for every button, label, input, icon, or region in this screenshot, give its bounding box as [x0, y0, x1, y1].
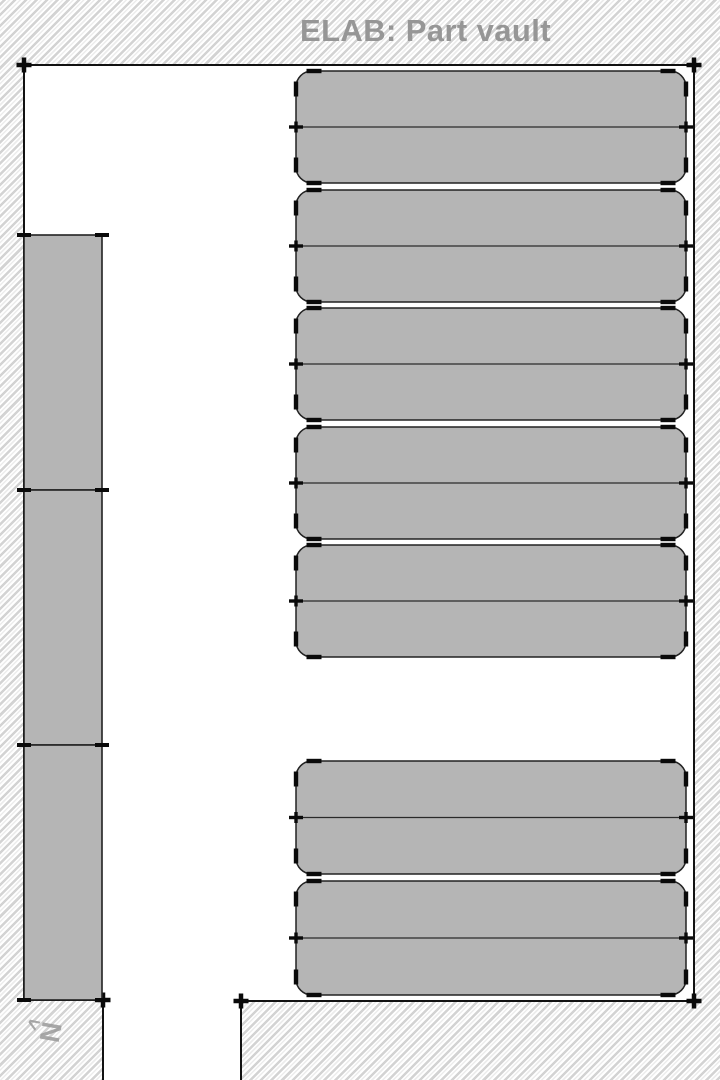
shelf-corner-tick	[661, 879, 676, 883]
divider-end-tick	[294, 933, 297, 944]
shelf-corner-tick	[684, 319, 688, 334]
shelf-corner-tick	[661, 188, 676, 192]
shelf-corner-tick	[684, 438, 688, 453]
box-corner-tick	[17, 998, 31, 1002]
shelf-corner-tick	[661, 993, 676, 997]
shelf-corner-tick	[684, 395, 688, 410]
shelf-unit	[289, 425, 693, 541]
shelf-corner-tick	[684, 772, 688, 787]
shelf-corner-tick	[294, 319, 298, 334]
shelf-corner-tick	[684, 82, 688, 97]
divider-end-tick	[294, 359, 297, 370]
shelf-unit	[289, 543, 693, 659]
shelf-corner-tick	[661, 759, 676, 763]
shelf-unit	[289, 188, 693, 304]
shelf-corner-tick	[661, 306, 676, 310]
page-title: ELAB: Part vault	[300, 13, 551, 49]
storage-box-outline	[24, 235, 102, 490]
shelf-corner-tick	[307, 69, 322, 73]
floorplan-canvas	[0, 0, 720, 1080]
storage-box	[17, 488, 109, 747]
shelf-corner-tick	[307, 181, 322, 185]
shelf-corner-tick	[307, 872, 322, 876]
shelf-corner-tick	[684, 158, 688, 173]
divider-end-tick	[294, 596, 297, 607]
shelf-corner-tick	[307, 759, 322, 763]
storage-box-outline	[24, 745, 102, 1000]
shelf-corner-tick	[661, 300, 676, 304]
divider-end-tick	[294, 241, 297, 252]
shelf-corner-tick	[294, 395, 298, 410]
shelf-corner-tick	[294, 849, 298, 864]
shelf-corner-tick	[294, 632, 298, 647]
shelf-corner-tick	[294, 158, 298, 173]
box-corner-tick	[95, 488, 109, 492]
shelf-corner-tick	[294, 970, 298, 985]
floorplan-page: ELAB: Part vault < N	[0, 0, 720, 1080]
shelf-corner-tick	[661, 425, 676, 429]
shelf-corner-tick	[661, 543, 676, 547]
shelf-corner-tick	[307, 306, 322, 310]
shelf-corner-tick	[307, 655, 322, 659]
shelf-corner-tick	[684, 201, 688, 216]
shelf-corner-tick	[684, 514, 688, 529]
shelf-corner-tick	[684, 277, 688, 292]
shelf-corner-tick	[684, 849, 688, 864]
shelf-corner-tick	[307, 425, 322, 429]
box-corner-tick	[95, 998, 109, 1002]
shelf-corner-tick	[684, 556, 688, 571]
shelf-corner-tick	[307, 537, 322, 541]
wall-corner-tick	[692, 994, 697, 1009]
shelf-unit	[289, 759, 693, 876]
divider-end-tick	[684, 359, 687, 370]
divider-end-tick	[294, 812, 297, 823]
shelf-corner-tick	[684, 892, 688, 907]
shelf-corner-tick	[661, 537, 676, 541]
box-corner-tick	[95, 233, 109, 237]
box-corner-tick	[17, 743, 31, 747]
shelf-corner-tick	[684, 632, 688, 647]
box-corner-tick	[95, 743, 109, 747]
divider-end-tick	[684, 241, 687, 252]
wall-corner-tick	[239, 994, 244, 1009]
divider-end-tick	[684, 812, 687, 823]
shelf-corner-tick	[661, 418, 676, 422]
shelf-corner-tick	[294, 277, 298, 292]
shelf-corner-tick	[661, 181, 676, 185]
box-corner-tick	[17, 233, 31, 237]
shelf-corner-tick	[294, 82, 298, 97]
shelf-corner-tick	[294, 438, 298, 453]
shelf-corner-tick	[684, 970, 688, 985]
shelf-corner-tick	[294, 556, 298, 571]
shelf-corner-tick	[294, 514, 298, 529]
storage-box	[17, 233, 109, 492]
shelf-corner-tick	[307, 300, 322, 304]
shelf-corner-tick	[294, 772, 298, 787]
storage-box	[17, 743, 109, 1002]
wall-corner-tick	[692, 58, 697, 73]
storage-box-outline	[24, 490, 102, 745]
shelf-corner-tick	[294, 892, 298, 907]
divider-end-tick	[294, 122, 297, 133]
shelf-corner-tick	[294, 201, 298, 216]
shelf-corner-tick	[661, 69, 676, 73]
wall-corner-tick	[22, 58, 27, 73]
shelf-corner-tick	[307, 543, 322, 547]
shelf-corner-tick	[307, 188, 322, 192]
divider-end-tick	[294, 478, 297, 489]
divider-end-tick	[684, 596, 687, 607]
shelf-corner-tick	[661, 872, 676, 876]
divider-end-tick	[684, 933, 687, 944]
box-corner-tick	[17, 488, 31, 492]
shelf-corner-tick	[661, 655, 676, 659]
shelf-unit	[289, 879, 693, 997]
shelf-unit	[289, 306, 693, 422]
divider-end-tick	[684, 122, 687, 133]
shelf-corner-tick	[307, 879, 322, 883]
shelf-unit	[289, 69, 693, 185]
divider-end-tick	[684, 478, 687, 489]
shelf-corner-tick	[307, 418, 322, 422]
shelf-corner-tick	[307, 993, 322, 997]
